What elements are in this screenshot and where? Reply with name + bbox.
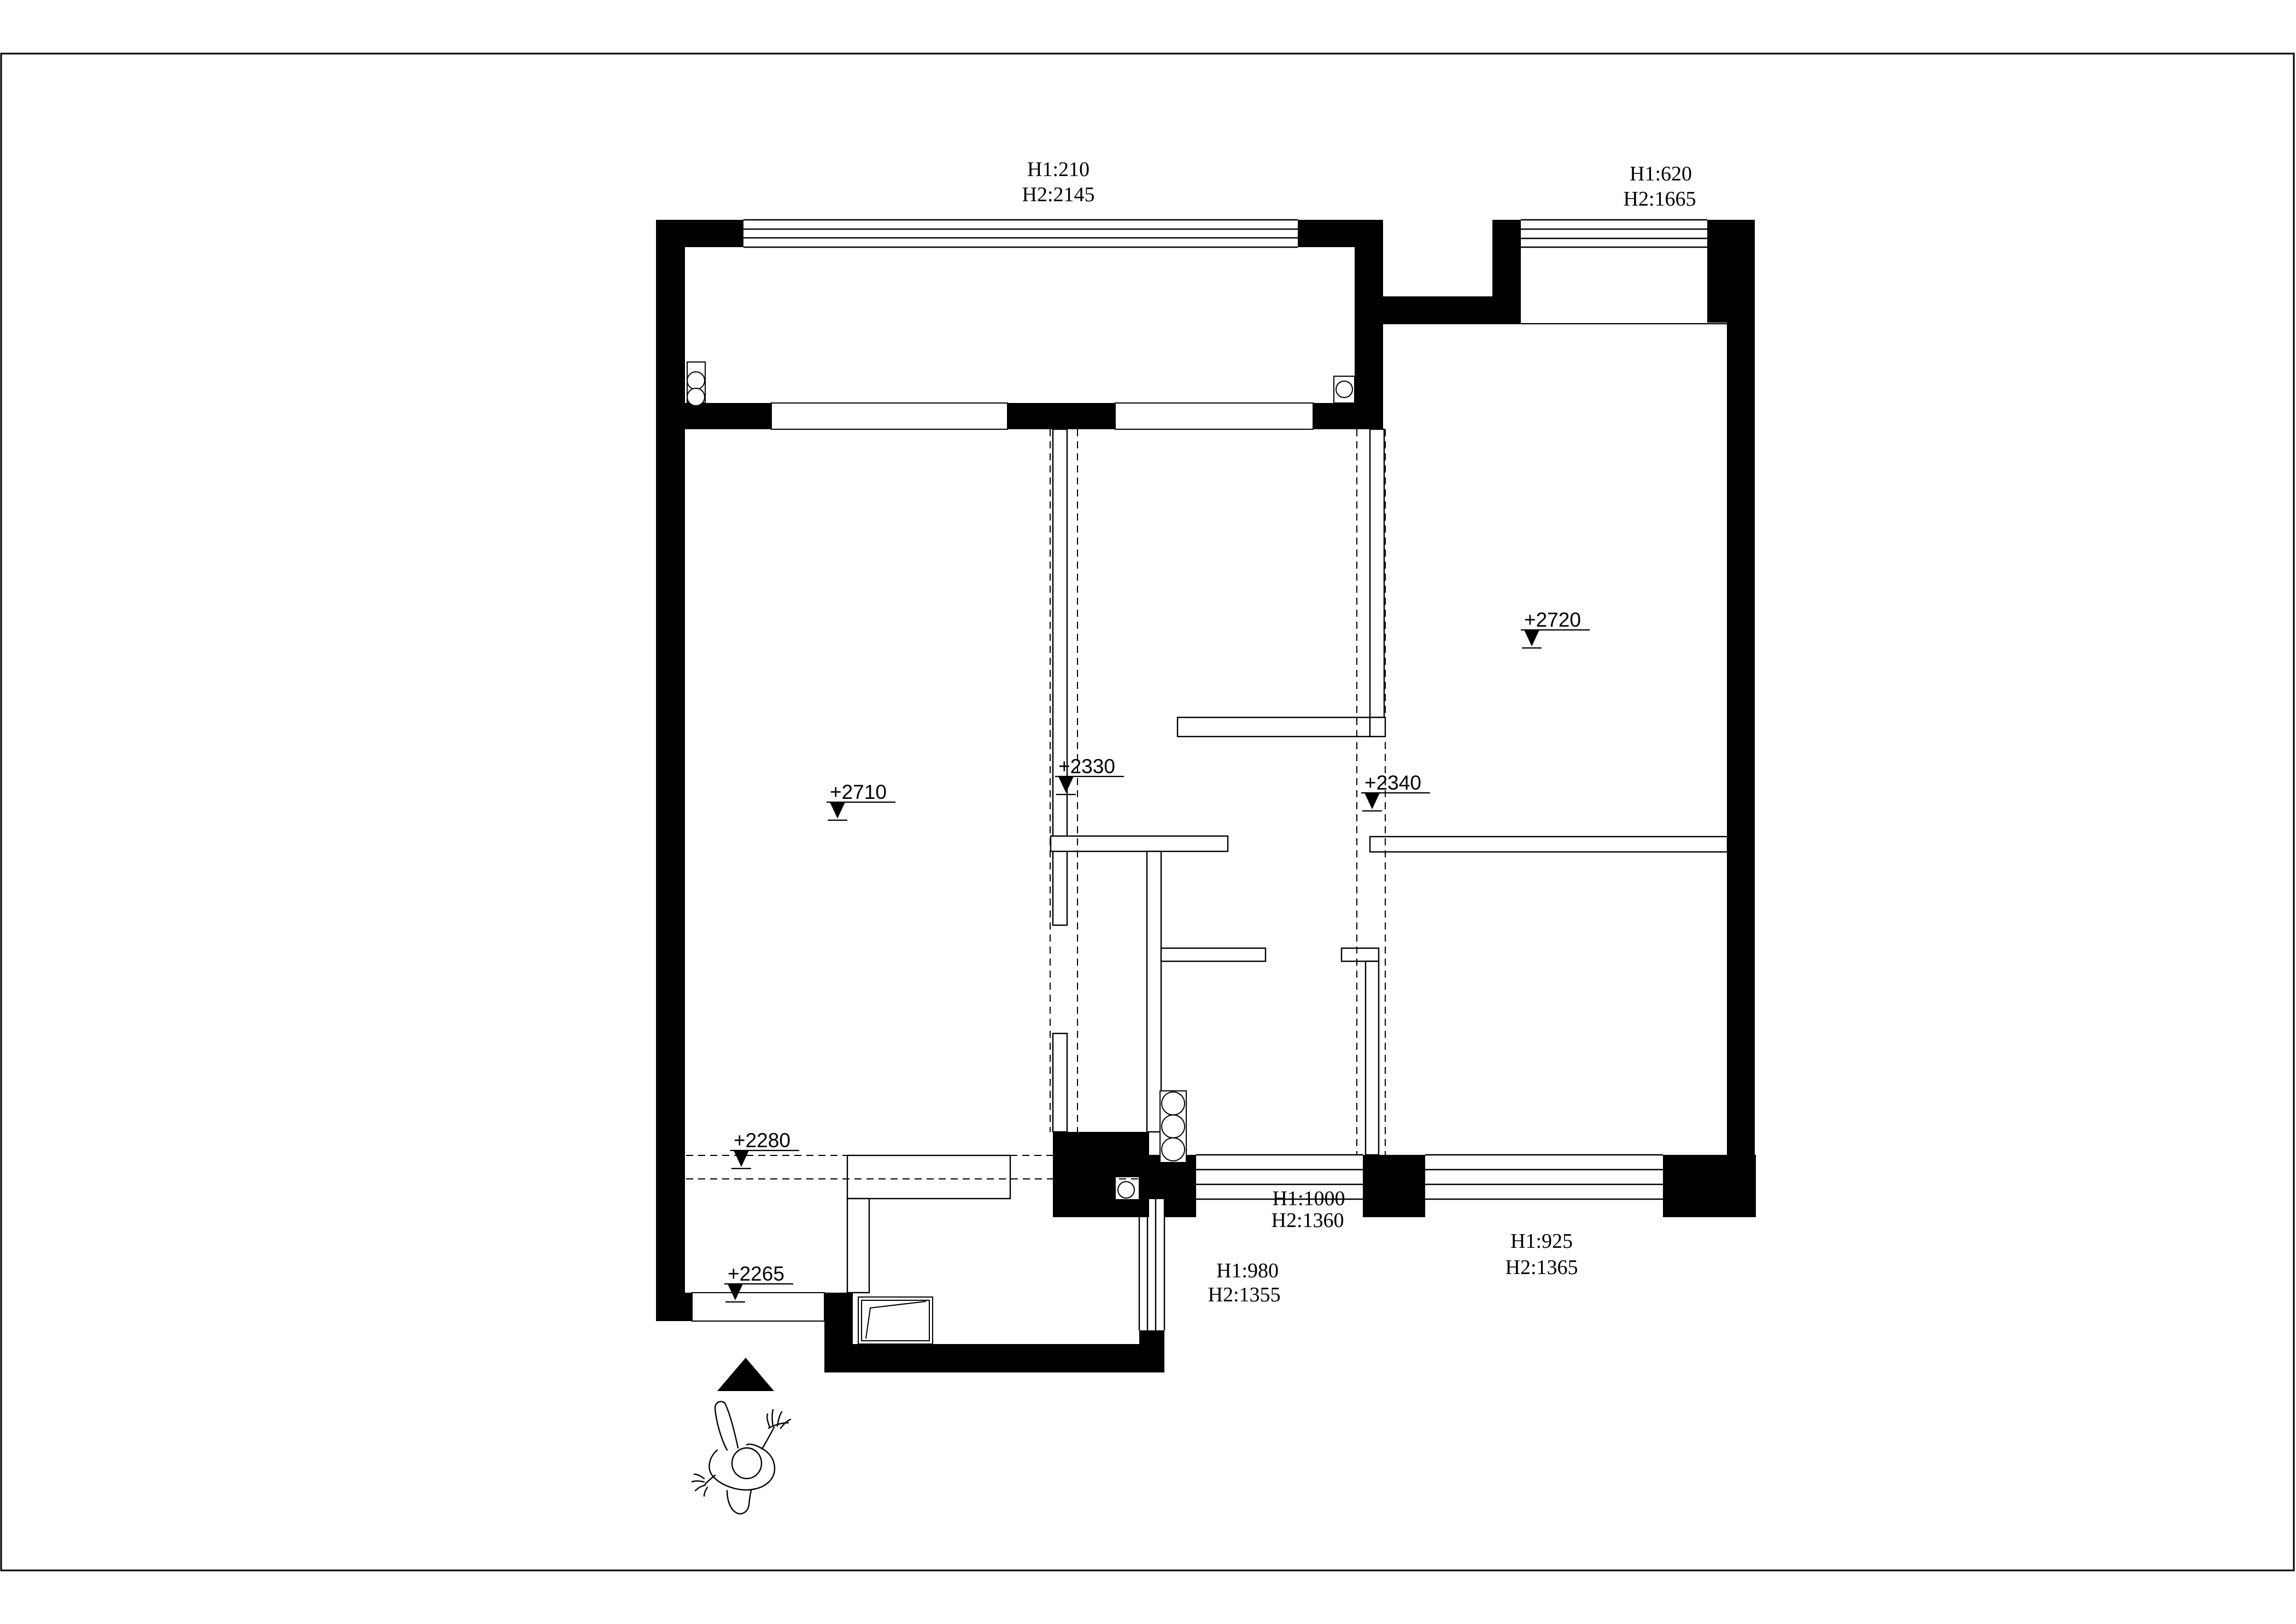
wall-segment [1363, 1155, 1425, 1217]
label-balcony-window-h1: H1:210 [1027, 158, 1090, 181]
wall-segment [1139, 1330, 1164, 1372]
wall-opening [1115, 403, 1313, 429]
wall-segment [1727, 323, 1755, 1217]
north-arrow-group [717, 1358, 774, 1391]
person-figure [705, 1475, 715, 1484]
wall-segment [1663, 1155, 1756, 1217]
pipe-circle [687, 388, 705, 406]
wall-segment [1707, 220, 1755, 323]
wall-segment [1139, 1179, 1164, 1199]
label-south-window-b-h1: H1:925 [1510, 1230, 1573, 1253]
pipes-balcony-left [687, 362, 705, 406]
level-entry-b-text: +2265 [728, 1263, 784, 1285]
person-figure-group [692, 1401, 790, 1514]
wall-segment [824, 1344, 1164, 1372]
wall-opening [692, 1293, 824, 1321]
partition-wall [847, 1155, 1010, 1199]
pipe-circle [1162, 1138, 1185, 1161]
riser-stack [1160, 1091, 1186, 1162]
person-figure [762, 1427, 774, 1449]
partition-wall [1053, 1033, 1067, 1132]
level-triangle-icon [734, 1150, 749, 1167]
level-triangle-icon [1524, 630, 1539, 646]
label-south-window-a-h1: H1:1000 [1273, 1187, 1345, 1210]
partition-wall [1342, 948, 1379, 961]
level-dining-text: +2340 [1364, 772, 1421, 794]
wall-segment [656, 403, 771, 429]
floor-plan-canvas: +2710+2330+2340+2720+2280+2265 H1:210H2:… [0, 0, 2296, 1624]
entry-pad-outer [858, 1297, 933, 1344]
person-figure [727, 1491, 751, 1514]
person-head [732, 1448, 762, 1479]
partition-wall [847, 1199, 869, 1293]
pipe-entry [1115, 1177, 1139, 1200]
level-living: +2710 [827, 781, 895, 820]
level-dining: +2340 [1361, 772, 1430, 811]
partition-wall [1147, 851, 1161, 1132]
label-balcony-window-h2: H2:2145 [1022, 183, 1095, 206]
level-hall-text: +2330 [1058, 755, 1115, 778]
label-entry-window-h2: H2:1355 [1208, 1283, 1281, 1306]
wall-segment [656, 1293, 692, 1321]
level-entry-a: +2280 [730, 1129, 799, 1169]
pipe-circle [1336, 381, 1352, 398]
level-bedroom-text: +2720 [1524, 609, 1581, 631]
partition-wall [1178, 717, 1370, 737]
entry-window [1139, 1199, 1164, 1330]
person-figure [715, 1401, 727, 1450]
wall-opening [771, 403, 1008, 429]
label-bay-window-h1: H1:620 [1630, 162, 1692, 185]
wall-segment [1355, 247, 1383, 429]
level-hall: +2330 [1055, 755, 1124, 795]
person-figure [725, 1403, 738, 1448]
fixtures-group [687, 362, 1355, 1344]
label-bay-window-h2: H2:1665 [1624, 188, 1696, 211]
level-triangle-icon [1364, 793, 1380, 809]
person-figure [767, 1410, 790, 1428]
wall-segment [1313, 403, 1383, 429]
partition-wall [1370, 837, 1727, 852]
partitions-group [847, 429, 1727, 1293]
entry-pad [858, 1297, 933, 1344]
wall-segment [1298, 220, 1383, 247]
level-bedroom: +2720 [1521, 609, 1590, 648]
label-entry-window-h1: H1:980 [1216, 1259, 1279, 1282]
balcony-window [743, 220, 1298, 247]
bay-window [1521, 220, 1707, 247]
pipe-circle [1162, 1115, 1185, 1138]
pipe-circle [687, 372, 705, 389]
label-south-window-b-h2: H2:1365 [1506, 1256, 1578, 1279]
pipe-balcony-right [1334, 376, 1355, 403]
wall-segment [1492, 220, 1521, 324]
pipe-circle [1162, 1092, 1185, 1115]
dashed-lines-group [686, 429, 1385, 1179]
level-entry-a-text: +2280 [734, 1129, 790, 1152]
drawing-sheet: +2710+2330+2340+2720+2280+2265 H1:210H2:… [0, 0, 2296, 1624]
partition-wall [1366, 961, 1379, 1155]
wall-segment [656, 220, 743, 247]
partition-wall [1161, 948, 1266, 961]
partition-wall [1370, 429, 1384, 717]
partition-wall [1370, 717, 1385, 737]
level-triangle-icon [830, 802, 845, 819]
person-figure [692, 1474, 707, 1496]
wall-segment [1008, 403, 1115, 429]
label-south-window-a-h2: H2:1360 [1272, 1209, 1344, 1232]
wall-segment [656, 220, 685, 1318]
north-arrow-icon [717, 1358, 774, 1391]
wall-segment [1053, 1132, 1149, 1217]
south-window-b [1425, 1155, 1663, 1199]
pipe-circle [1118, 1182, 1134, 1198]
wall-segment [1164, 1155, 1196, 1217]
level-living-text: +2710 [830, 781, 887, 803]
person-figure [709, 1444, 775, 1490]
